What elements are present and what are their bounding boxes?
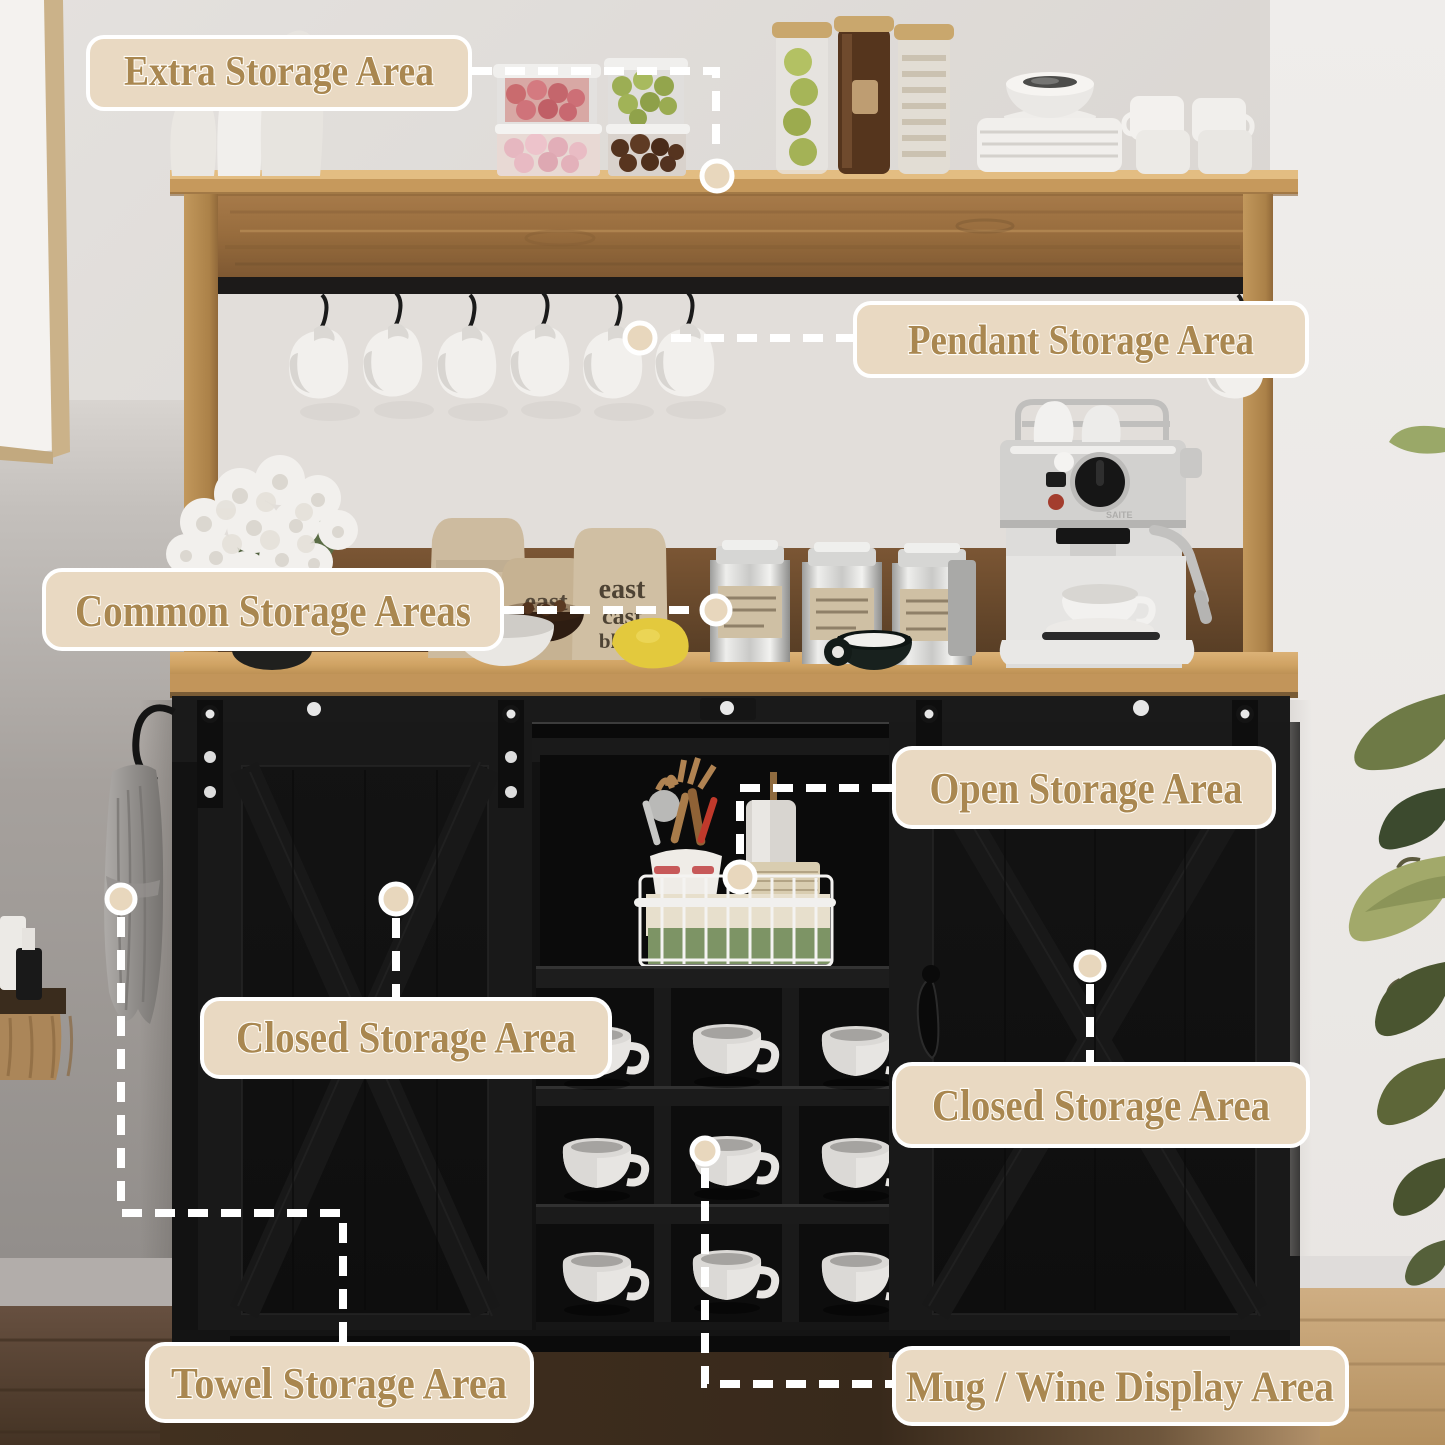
svg-text:SAITE: SAITE — [1106, 510, 1133, 520]
svg-text:east: east — [599, 574, 646, 605]
svg-text:Common Storage Areas: Common Storage Areas — [75, 585, 471, 636]
svg-text:Open Storage Area: Open Storage Area — [930, 764, 1243, 813]
svg-text:Towel Storage Area: Towel Storage Area — [171, 1359, 507, 1408]
svg-text:Closed Storage Area: Closed Storage Area — [932, 1081, 1270, 1130]
svg-text:Mug / Wine Display Area: Mug / Wine Display Area — [906, 1364, 1334, 1411]
svg-text:Pendant Storage Area: Pendant Storage Area — [908, 318, 1254, 364]
svg-text:Extra Storage Area: Extra Storage Area — [124, 49, 434, 95]
svg-text:Closed Storage Area: Closed Storage Area — [236, 1013, 576, 1062]
